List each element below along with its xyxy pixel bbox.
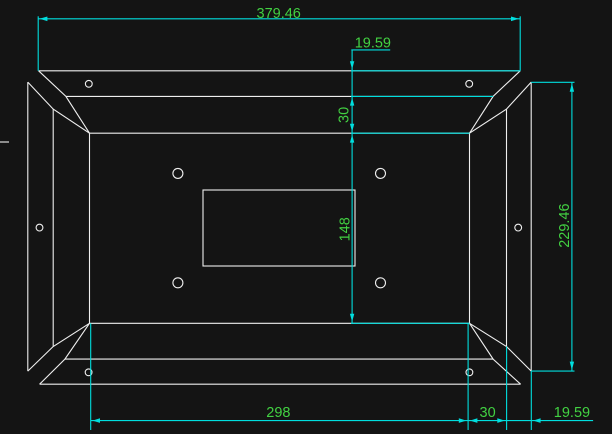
svg-text:148: 148 bbox=[337, 217, 353, 241]
svg-text:229.46: 229.46 bbox=[557, 203, 573, 247]
svg-text:298: 298 bbox=[266, 405, 290, 421]
svg-text:30: 30 bbox=[337, 107, 353, 123]
svg-text:19.59: 19.59 bbox=[355, 35, 391, 51]
svg-text:19.59: 19.59 bbox=[554, 405, 590, 421]
svg-text:30: 30 bbox=[480, 405, 496, 421]
svg-text:379.46: 379.46 bbox=[257, 6, 301, 22]
